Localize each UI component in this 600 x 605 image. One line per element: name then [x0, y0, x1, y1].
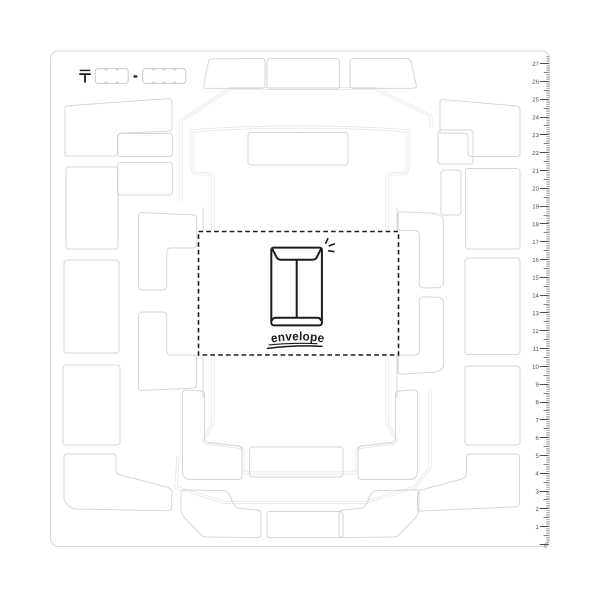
- svg-text:10: 10: [532, 365, 539, 371]
- svg-text:24: 24: [532, 115, 539, 121]
- svg-text:11: 11: [533, 347, 540, 353]
- svg-text:16: 16: [532, 258, 539, 264]
- svg-text:14: 14: [532, 293, 539, 299]
- svg-text:25: 25: [532, 98, 539, 104]
- svg-text:17: 17: [532, 240, 539, 246]
- svg-text:23: 23: [532, 133, 539, 139]
- svg-text:19: 19: [532, 204, 539, 210]
- svg-text:15: 15: [532, 276, 539, 282]
- svg-text:22: 22: [532, 151, 539, 157]
- svg-text:21: 21: [532, 169, 539, 175]
- svg-text:26: 26: [532, 80, 539, 86]
- svg-text:13: 13: [532, 311, 539, 317]
- svg-text:12: 12: [532, 329, 539, 335]
- svg-text:27: 27: [532, 62, 539, 68]
- svg-text:20: 20: [532, 187, 539, 193]
- svg-text:18: 18: [532, 222, 539, 228]
